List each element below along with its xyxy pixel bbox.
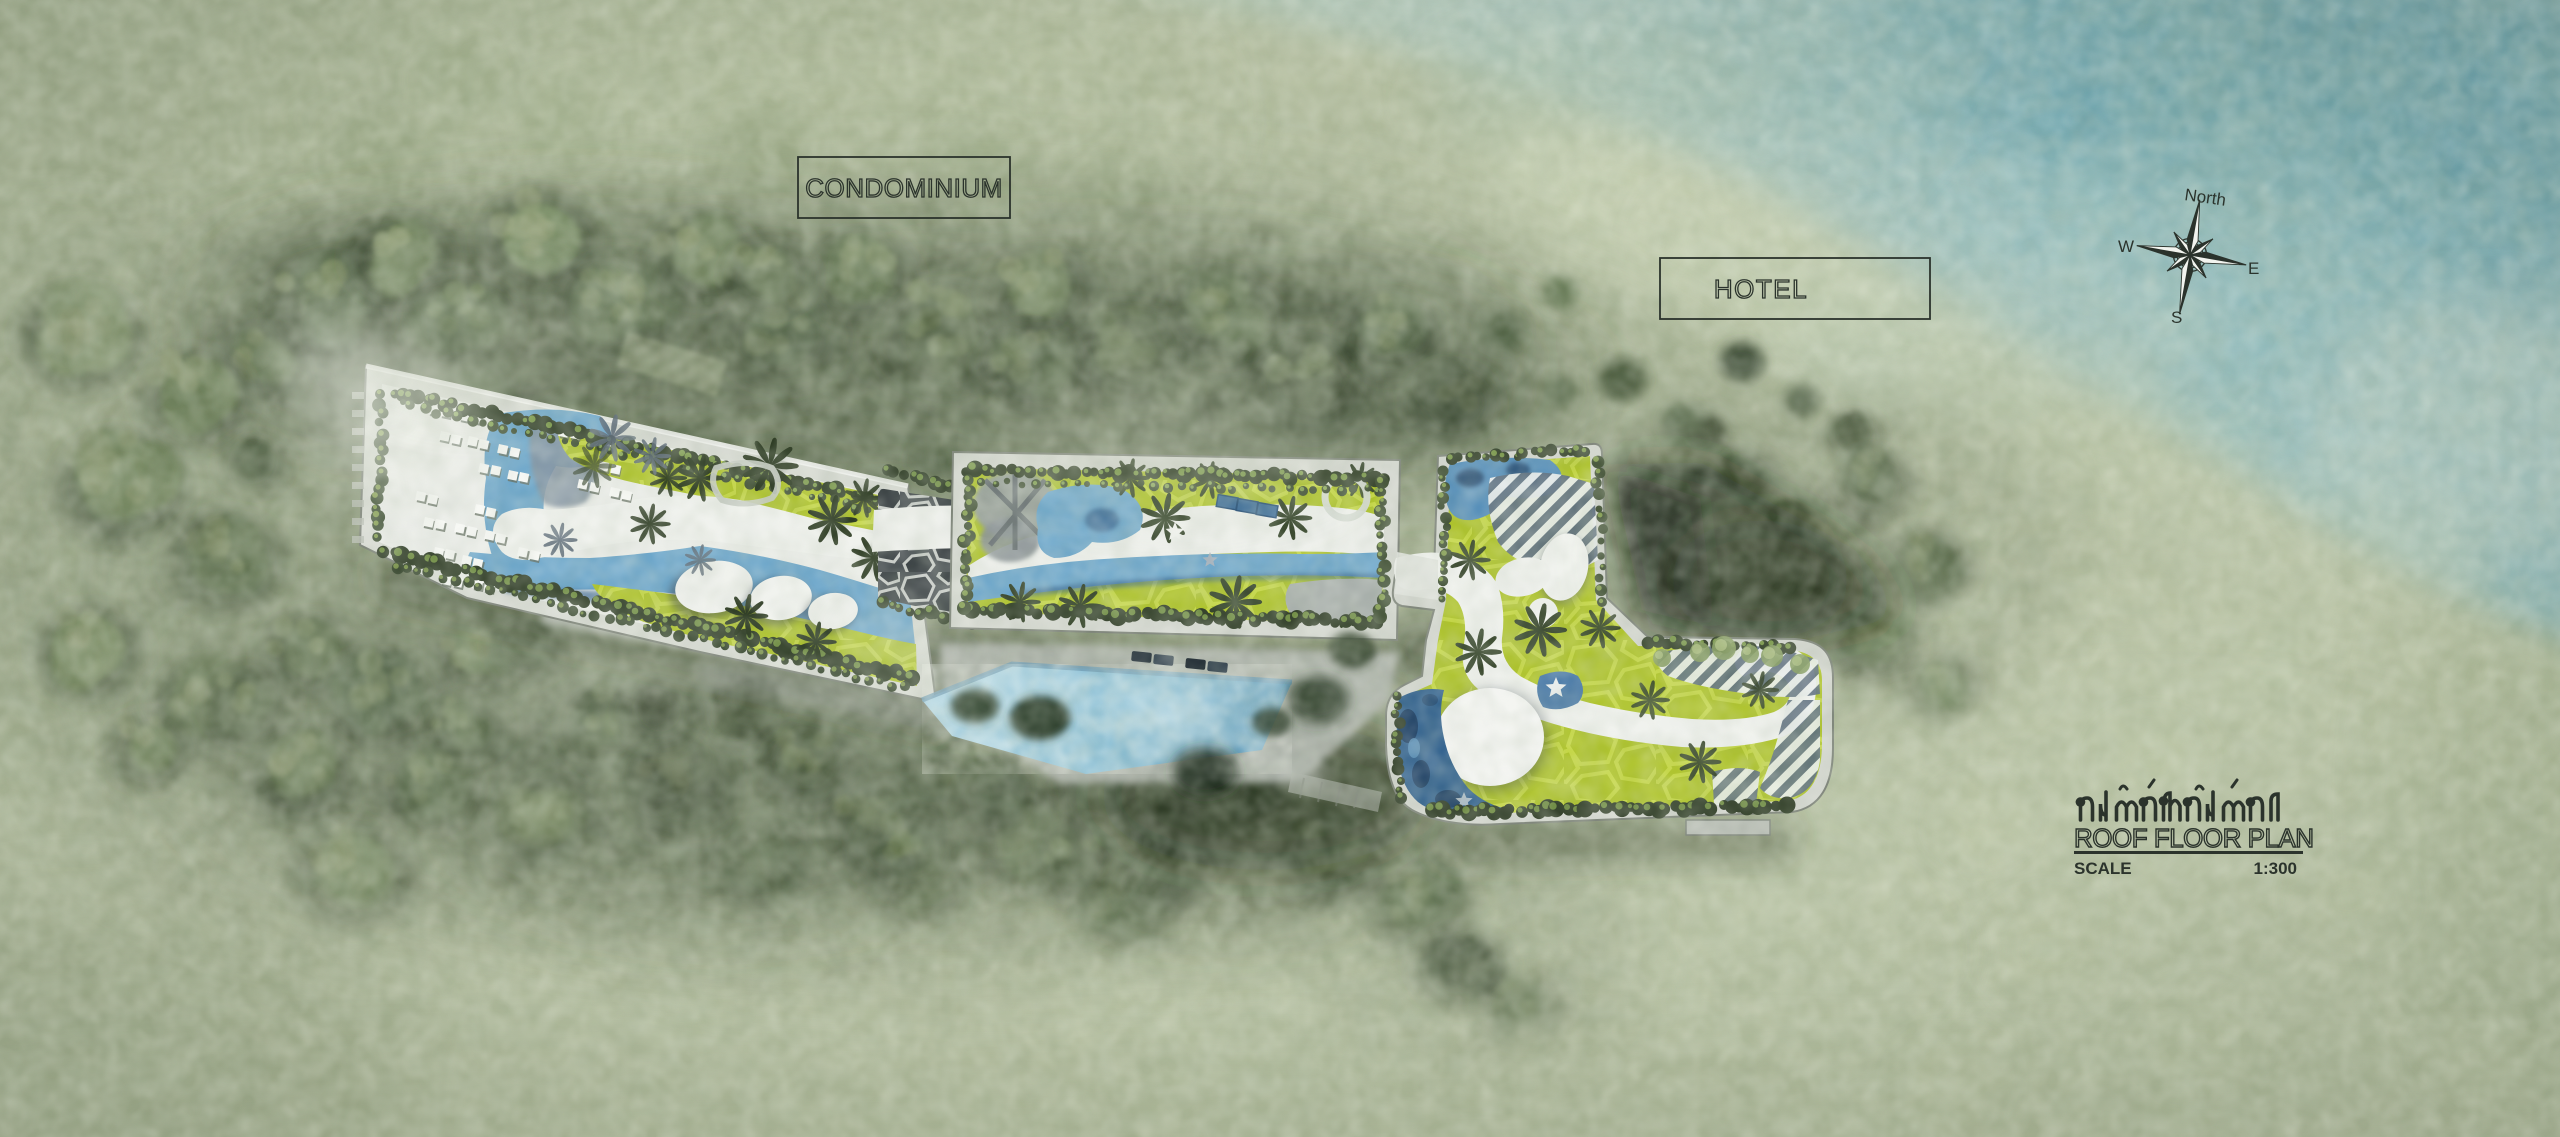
svg-text:ROOF FLOOR PLAN: ROOF FLOOR PLAN: [2074, 823, 2314, 853]
svg-text:HOTEL: HOTEL: [1714, 274, 1808, 304]
svg-text:E: E: [2248, 259, 2259, 278]
svg-text:W: W: [2118, 237, 2134, 256]
svg-text:CONDOMINIUM: CONDOMINIUM: [805, 173, 1003, 203]
svg-text:1:300: 1:300: [2254, 859, 2297, 878]
svg-text:S: S: [2171, 308, 2182, 327]
svg-text:SCALE: SCALE: [2074, 859, 2132, 878]
